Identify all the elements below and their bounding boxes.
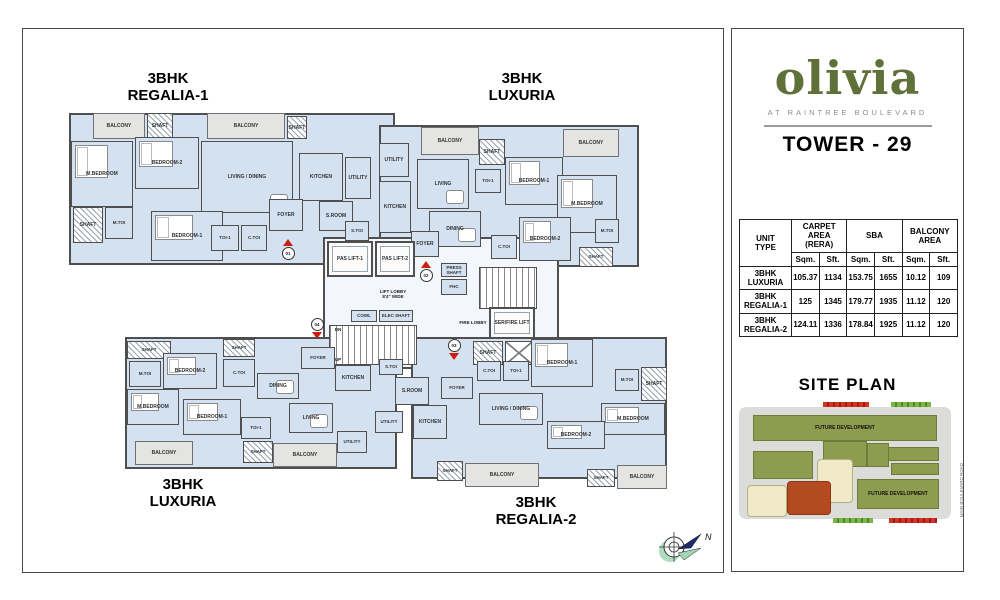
area-value-cell: 120 <box>930 313 958 336</box>
unit-title-luxuria: 3BHKLUXURIA <box>150 477 217 511</box>
area-value-cell: 11.12 <box>902 290 930 313</box>
shaft-shaft: SHAFT <box>437 461 463 481</box>
area-value-cell: 1655 <box>874 266 902 289</box>
road-label: MAIN BOULEVARD ROAD <box>959 463 964 517</box>
toi-toi-1: TOI-1 <box>211 225 239 251</box>
info-panel: olivia AT RAINTREE BOULEVARD TOWER - 29 … <box>731 28 964 572</box>
room-label: SHAFT <box>80 222 97 228</box>
balcony-balcony: BALCONY <box>421 127 479 155</box>
unit-title-regalia-1: 3BHKREGALIA-1 <box>128 71 209 105</box>
door-number: 04 <box>311 318 324 331</box>
door-arrow-icon <box>421 261 431 268</box>
room-label: DINING <box>446 226 464 232</box>
room-label: C.TOI <box>233 370 245 375</box>
room-fhc: FHC <box>441 279 467 295</box>
site-block-mark-green <box>833 518 873 523</box>
room-label: S.TOI <box>351 228 363 233</box>
lift-pas-lift-2: PAS LIFT-2 <box>375 241 415 277</box>
shaft-shaft: SHAFT <box>479 139 505 165</box>
room-label: BALCONY <box>293 452 318 458</box>
room-bedroom-2: BEDROOM-2 <box>163 353 217 389</box>
room-label: BALCONY <box>579 140 604 146</box>
room-label: FOYER <box>310 355 326 360</box>
room-label: C.TOI <box>248 235 260 240</box>
room-label: C.TOI <box>498 244 510 249</box>
toi-c-toi: C.TOI <box>491 235 517 259</box>
area-value-cell: 109 <box>930 266 958 289</box>
balcony-balcony: BALCONY <box>273 443 337 467</box>
area-value-cell: 125 <box>792 290 820 313</box>
toi-toi-1: TOI-1 <box>475 169 501 193</box>
room-label: FOYER <box>277 212 294 218</box>
room-foyer: FOYER <box>411 231 439 257</box>
site-block-cream <box>747 485 787 517</box>
room-label: LIVING / DINING <box>228 174 266 180</box>
room-label: LIVING / DINING <box>492 406 530 412</box>
compass-icon: N <box>651 524 721 570</box>
door-arrow-icon <box>312 332 322 339</box>
room-kitchen: KITCHEN <box>413 405 447 439</box>
room-label: UTILITY <box>349 175 368 181</box>
room-label: SHAFT <box>646 381 663 387</box>
unit-type-cell: 3BHK REGALIA-2 <box>740 313 792 336</box>
area-value-cell: 105.37 <box>792 266 820 289</box>
lift-pas-lift-1: PAS LIFT-1 <box>327 241 373 277</box>
divider <box>764 125 932 127</box>
room-label: M.BEDROOM <box>571 201 603 207</box>
balcony-balcony: BALCONY <box>617 465 667 489</box>
toi-toi-1: TOI-1 <box>503 361 529 381</box>
site-block-green <box>753 451 813 479</box>
room-label: SHAFT <box>443 468 458 473</box>
area-value-cell: 10.12 <box>902 266 930 289</box>
room-label: SER/FIRE LIFT <box>495 320 530 326</box>
room-bedroom-1: BEDROOM-1 <box>531 339 593 387</box>
room-label: BALCONY <box>234 123 259 129</box>
unit-title-regalia-2: 3BHKREGALIA-2 <box>496 495 577 529</box>
room-label: DINING <box>269 383 287 389</box>
balcony-balcony: BALCONY <box>465 463 539 487</box>
site-block-red <box>787 481 831 515</box>
site-block-green: FUTURE DEVELOPMENT <box>753 415 937 441</box>
table-icon <box>446 190 464 204</box>
toi-c-toi: C.TOI <box>241 225 267 251</box>
room-label: TOI-1 <box>219 235 230 240</box>
room-bedroom-2: BEDROOM-2 <box>135 137 199 189</box>
area-row-3bhk-luxuria: 3BHK LUXURIA105.371134153.75165510.12109 <box>740 266 958 289</box>
room-m-bedroom: M.BEDROOM <box>601 403 665 435</box>
room-label: PAS LIFT-2 <box>382 256 408 262</box>
room-label: KITCHEN <box>310 174 332 180</box>
open-lift-lobby-8-4-wide: LIFT LOBBY 8'4" WIDE <box>353 285 433 303</box>
room-label: BEDROOM-1 <box>197 414 228 420</box>
room-label: TOI-1 <box>482 178 493 183</box>
room-utility: UTILITY <box>379 143 409 177</box>
door-number: 02 <box>420 269 433 282</box>
room-label: FHC <box>449 284 458 289</box>
room-label: S.ROOM <box>402 388 422 394</box>
room-dining: DINING <box>257 373 299 399</box>
area-value-cell: 1925 <box>874 313 902 336</box>
room-utility: UTILITY <box>337 431 367 453</box>
room-bedroom-1: BEDROOM-1 <box>183 399 241 435</box>
compass-north-label: N <box>705 532 712 542</box>
room-label: SHAFT <box>251 449 266 454</box>
room-utility: UTILITY <box>375 411 403 433</box>
room-foyer: FOYER <box>441 377 473 399</box>
balcony-balcony: BALCONY <box>563 129 619 157</box>
col-balcony-area: BALCONYAREA <box>902 220 957 253</box>
room-label: KITCHEN <box>384 204 406 210</box>
toi-m-toi: M.TOI <box>595 219 619 243</box>
room-m-bedroom: M.BEDROOM <box>127 389 179 425</box>
room-label: BALCONY <box>438 138 463 144</box>
room-label: M.TOI <box>601 228 613 233</box>
shaft-shaft: SHAFT <box>243 441 273 463</box>
entry-marker-03: 03 <box>447 339 461 361</box>
room-label: BEDROOM-1 <box>547 360 578 366</box>
balcony-balcony: BALCONY <box>207 113 285 139</box>
room-label: LIVING <box>303 415 320 421</box>
site-block-label: FUTURE DEVELOPMENT <box>815 425 875 431</box>
tower-title: TOWER - 29 <box>732 133 963 157</box>
room-label: SHAFT <box>142 347 157 352</box>
room-label: BEDROOM-1 <box>172 233 203 239</box>
room-label: SHAFT <box>232 345 247 350</box>
area-value-cell: 124.11 <box>792 313 820 336</box>
room-label: BEDROOM-2 <box>175 368 206 374</box>
room-label: BALCONY <box>107 123 132 129</box>
room-label: M.TOI <box>139 371 151 376</box>
room-elec-shaft: ELEC SHAFT <box>379 310 413 322</box>
room-utility: UTILITY <box>345 157 371 199</box>
room-label: BEDROOM-2 <box>561 432 592 438</box>
room-bedroom-1: BEDROOM-1 <box>505 157 563 205</box>
room-living-dining: LIVING / DINING <box>479 393 543 425</box>
room-kitchen: KITCHEN <box>379 181 411 233</box>
room-label: BEDROOM-2 <box>152 160 183 166</box>
unit-type-cell: 3BHK LUXURIA <box>740 266 792 289</box>
room-label: S.TOI <box>385 364 397 369</box>
open-dn: DN <box>331 326 345 334</box>
site-block-mark-red <box>823 402 869 407</box>
room-label: FOYER <box>416 241 433 247</box>
room-label: FOYER <box>449 385 465 390</box>
room-label: UTILITY <box>381 419 398 424</box>
room-label: BALCONY <box>152 450 177 456</box>
shaft-shaft: SHAFT <box>579 247 613 267</box>
toi-toi-1: TOI-1 <box>241 417 271 439</box>
room-kitchen: KITCHEN <box>299 153 343 201</box>
door-arrow-icon <box>283 239 293 246</box>
area-value-cell: 179.77 <box>847 290 875 313</box>
lift-ser-fire-lift: SER/FIRE LIFT <box>489 307 535 339</box>
room-kitchen: KITCHEN <box>335 365 371 391</box>
site-plan-title: SITE PLAN <box>732 375 963 395</box>
entry-marker-02: 02 <box>419 260 433 282</box>
floor-plan: BALCONYSHAFTBALCONYSHAFTM.BEDROOMBEDROOM… <box>23 29 723 572</box>
room-bedroom-2: BEDROOM-2 <box>547 421 605 449</box>
room-label: DN <box>335 327 342 332</box>
door-number: 03 <box>448 339 461 352</box>
room-label: BEDROOM-1 <box>519 178 550 184</box>
room-label: M.TOI <box>621 377 633 382</box>
room-label: SHAFT <box>480 350 497 356</box>
toi-c-toi: C.TOI <box>223 359 255 387</box>
site-block-green <box>867 443 889 467</box>
area-value-cell: 178.84 <box>847 313 875 336</box>
site-block-label: FUTURE DEVELOPMENT <box>868 491 928 497</box>
area-value-cell: 11.12 <box>902 313 930 336</box>
room-label: BALCONY <box>490 472 515 478</box>
toi-s-toi: S.TOI <box>379 359 403 375</box>
balcony-balcony: BALCONY <box>93 113 145 139</box>
room-label: M.BEDROOM <box>617 416 649 422</box>
shaft-shaft: SHAFT <box>287 116 307 139</box>
area-value-cell: 1345 <box>819 290 847 313</box>
room-label: ELEC SHAFT <box>382 313 410 318</box>
toi-m-toi: M.TOI <box>615 369 639 391</box>
toi-m-toi: M.TOI <box>105 207 133 239</box>
site-block-green <box>891 463 939 475</box>
room-s-room: S.ROOM <box>395 377 429 405</box>
room-label: LIVING <box>435 181 452 187</box>
room-label: SHAFT <box>589 254 604 259</box>
room-label: FIRE LOBBY <box>459 320 486 325</box>
room-label: S.ROOM <box>326 213 346 219</box>
room-label: SHAFT <box>289 125 306 131</box>
room-label: LIFT LOBBY 8'4" WIDE <box>380 289 407 300</box>
room-label: PRESS SHAFT <box>442 265 466 276</box>
room-label: TOI-1 <box>510 368 521 373</box>
toi-m-toi: M.TOI <box>129 361 161 387</box>
balcony-balcony: BALCONY <box>135 441 193 465</box>
col-carpet-area: CARPET AREA(RERA) <box>792 220 847 253</box>
area-row-3bhk-regalia-2: 3BHK REGALIA-2124.111336178.84192511.121… <box>740 313 958 336</box>
unit-type-cell: 3BHK REGALIA-1 <box>740 290 792 313</box>
site-block-mark-red <box>889 518 937 523</box>
room-label: SHAFT <box>484 149 501 155</box>
room-label: C.TOI <box>483 368 495 373</box>
unit-title-luxuria: 3BHKLUXURIA <box>489 71 556 105</box>
room-label: SHAFT <box>152 123 169 129</box>
room-label: UP <box>335 357 341 362</box>
room-foyer: FOYER <box>301 347 335 369</box>
col-sba: SBA <box>847 220 902 253</box>
shaft-shaft: SHAFT <box>641 367 667 401</box>
brand-tagline: AT RAINTREE BOULEVARD <box>732 108 963 117</box>
shaft-shaft: SHAFT <box>147 113 173 139</box>
room-label: PAS LIFT-1 <box>337 256 363 262</box>
room-label: M.BEDROOM <box>137 404 169 410</box>
room-press-shaft: PRESS SHAFT <box>441 263 467 277</box>
area-value-cell: 120 <box>930 290 958 313</box>
col-unit-type: UNITTYPE <box>740 220 792 267</box>
entry-marker-01: 01 <box>281 238 295 260</box>
area-row-3bhk-regalia-1: 3BHK REGALIA-11251345179.77193511.12120 <box>740 290 958 313</box>
room-label: UTILITY <box>385 157 404 163</box>
room-living: LIVING <box>417 159 469 209</box>
room-label: BEDROOM-2 <box>530 236 561 242</box>
room-label: SHAFT <box>594 475 609 480</box>
stair-area <box>479 267 537 309</box>
room-label: TOI-1 <box>250 425 261 430</box>
door-number: 01 <box>282 247 295 260</box>
site-plan: MAIN BOULEVARD ROAD FUTURE DEVELOPMENTFU… <box>739 397 958 531</box>
area-value-cell: 1935 <box>874 290 902 313</box>
room-label: KITCHEN <box>419 419 441 425</box>
room-foyer: FOYER <box>269 199 303 231</box>
room-bedroom-2: BEDROOM-2 <box>519 217 571 261</box>
door-arrow-icon <box>449 353 459 360</box>
room-label: M.BEDROOM <box>86 171 118 177</box>
room-cowl: COWL <box>351 310 377 322</box>
site-block-mark-green <box>891 402 931 407</box>
area-table: UNITTYPE CARPET AREA(RERA) SBA BALCONYAR… <box>739 219 958 337</box>
area-value-cell: 1336 <box>819 313 847 336</box>
area-value-cell: 153.75 <box>847 266 875 289</box>
shaft-shaft: SHAFT <box>223 339 255 357</box>
site-block-green: FUTURE DEVELOPMENT <box>857 479 939 509</box>
entry-marker-04: 04 <box>310 318 324 340</box>
room-label: COWL <box>357 313 371 318</box>
shaft-shaft: SHAFT <box>73 207 103 243</box>
toi-c-toi: C.TOI <box>477 361 501 381</box>
room-label: UTILITY <box>344 439 361 444</box>
shaft-shaft: SHAFT <box>587 469 615 487</box>
toi-s-toi: S.TOI <box>345 221 369 241</box>
room-m-bedroom: M.BEDROOM <box>71 141 133 207</box>
area-value-cell: 1134 <box>819 266 847 289</box>
room-label: BALCONY <box>630 474 655 480</box>
room-living: LIVING <box>289 403 333 433</box>
room-label: M.TOI <box>113 220 125 225</box>
brand-logo: olivia <box>732 55 963 101</box>
floor-plan-panel: BALCONYSHAFTBALCONYSHAFTM.BEDROOMBEDROOM… <box>22 28 724 573</box>
room-label: KITCHEN <box>342 375 364 381</box>
